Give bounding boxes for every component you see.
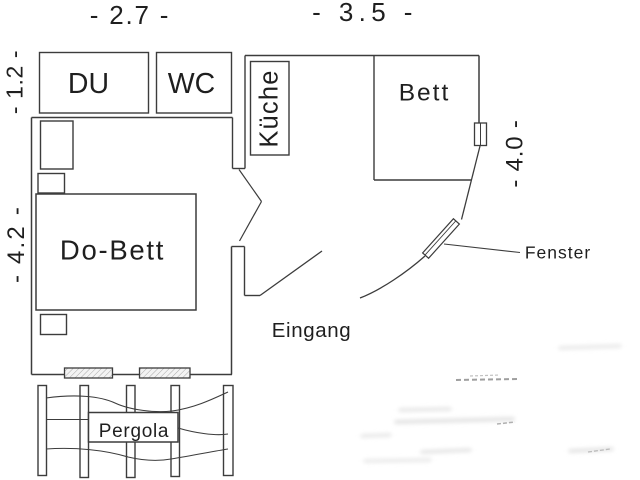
svg-text:- 3.5 -: - 3.5 - [312,0,418,27]
svg-text:- 1.2 -: - 1.2 - [2,50,28,114]
svg-text:Do-Bett: Do-Bett [60,235,165,266]
svg-text:Fenster: Fenster [525,243,591,263]
svg-text:- 4.2 -: - 4.2 - [3,205,30,283]
svg-text:WC: WC [168,68,215,100]
svg-text:- 2.7 -: - 2.7 - [90,0,171,30]
svg-text:Eingang: Eingang [272,319,351,342]
svg-text:Pergola: Pergola [99,421,169,442]
svg-text:Küche: Küche [256,69,284,147]
svg-text:DU: DU [68,68,109,100]
svg-text:- 4.0 -: - 4.0 - [502,119,529,187]
svg-text:Bett: Bett [399,80,451,107]
